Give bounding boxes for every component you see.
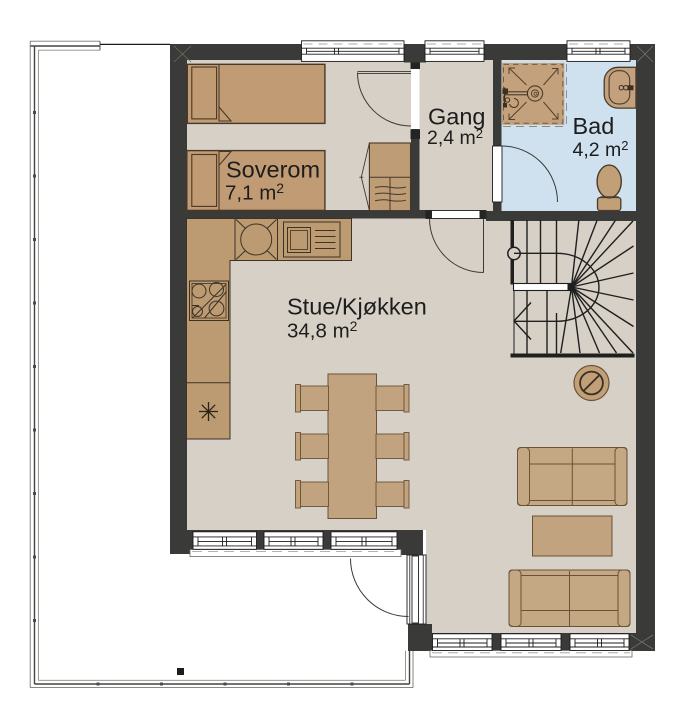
svg-text:Bad: Bad xyxy=(573,113,615,139)
svg-text:Soverom: Soverom xyxy=(226,157,320,183)
svg-text:7,1 m2: 7,1 m2 xyxy=(225,180,284,205)
svg-text:Stue/Kjøkken: Stue/Kjøkken xyxy=(287,294,427,320)
svg-text:2,4 m2: 2,4 m2 xyxy=(427,126,483,149)
svg-text:34,8 m2: 34,8 m2 xyxy=(287,318,358,343)
svg-text:4,2 m2: 4,2 m2 xyxy=(573,138,629,161)
